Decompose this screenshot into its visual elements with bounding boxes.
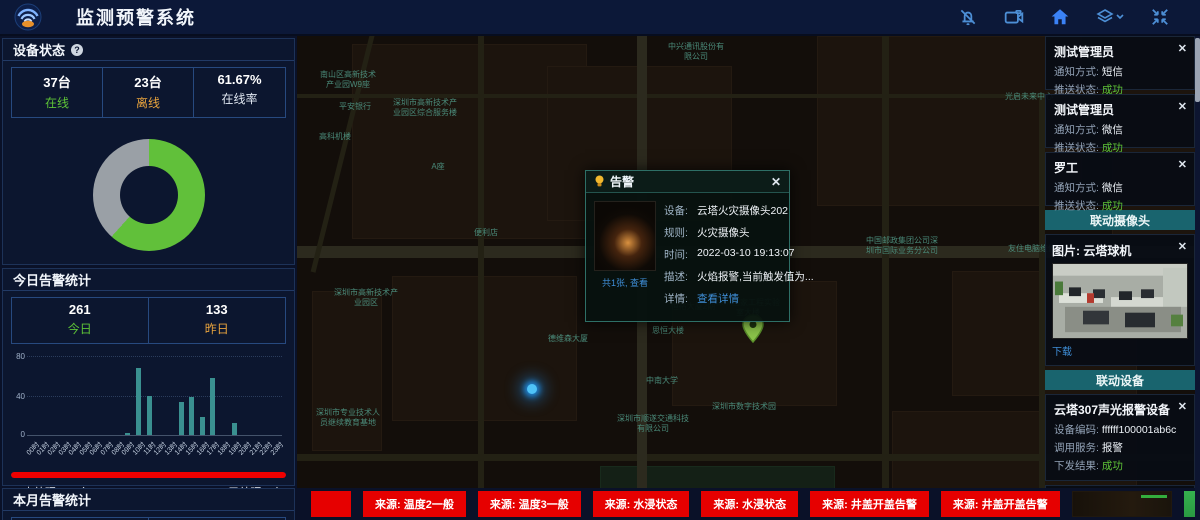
alert-row-label: 描述: [664,269,692,284]
notification-name: 测试管理员 [1054,43,1186,60]
alarm-lamp-icon [594,175,605,188]
map-label: A座 [423,162,453,172]
linked-device-section-header[interactable]: 联动设备 [1045,370,1195,390]
bar-slot [240,356,251,435]
today-alarms-header: 今日告警统计 [3,269,294,291]
bar-chart-xlabels: 00时01时02时03时04时05时06时07时08时09时10时11时12时1… [27,438,282,466]
month-alarms-panel: 本月告警统计 763 1146 [2,488,295,520]
bottom-alert-card[interactable]: 来源: 井盖开盖告警 [941,491,1060,517]
device-row-value: 成功 [1102,460,1123,472]
notify-method-label: 通知方式: [1054,124,1099,136]
vertical-scrollbar [1195,36,1200,520]
alert-detail-link[interactable]: 查看详情 [697,291,739,306]
notification-card: ✕ 测试管理员 通知方式:短信 推送状态:成功 [1045,36,1195,90]
map-road [882,36,889,520]
notify-method-value: 短信 [1102,66,1123,78]
notify-method-label: 通知方式: [1054,182,1099,194]
bell-off-icon[interactable] [958,7,978,27]
push-status-label: 推送状态: [1054,200,1099,212]
stat-offline: 23台离线 [103,68,194,117]
notification-card: ✕ 测试管理员 通知方式:微信 推送状态:成功 [1045,94,1195,148]
map-label: 思恒大楼 [641,326,695,336]
device-status-title: 设备状态 [13,40,65,59]
bar-slot [144,356,155,435]
right-sidebar: ✕ 测试管理员 通知方式:短信 推送状态:成功 ✕ 测试管理员 通知方式:微信 … [1045,36,1195,488]
bar-slot [250,356,261,435]
page-title: 监测预警系统 [76,4,196,30]
device-row-label: 下发结果: [1054,460,1099,472]
bottom-alert-snapshot-dark[interactable] [1072,491,1172,517]
today-alarms-panel: 今日告警统计 261今日 133昨日 80 40 0 00时01时02时03时0… [2,268,295,486]
today-alarms-title: 今日告警统计 [13,270,91,289]
map-label: 深圳市顺遂交通科技有限公司 [615,414,691,435]
device-row-value: 报警 [1102,442,1123,454]
app-logo-icon [14,3,42,31]
bar-x-label: 23时 [271,438,282,466]
bar-chart-plot: 80 40 0 [27,356,282,436]
bar-slot [165,356,176,435]
alert-row-label: 设备: [664,203,692,218]
map-label: 深圳市专业技术人员继续教育基地 [313,408,383,429]
bar-slot [38,356,49,435]
device-row-label: 调用服务: [1054,442,1099,454]
stat-today: 261今日 [12,298,149,343]
map-road [478,36,484,520]
app-root: 监测预警系统 [0,0,1200,520]
bar-slot [133,356,144,435]
map-label: 深圳市数字技术园 [697,402,791,412]
bar [136,368,141,435]
linked-device-card: ✕ 云塔307声光报警设备 设备编码:ffffff100001ab6c 调用服务… [1045,394,1195,481]
unhandled-progress-fill [11,472,286,478]
alert-row-value: 2022-03-10 19:13:07 [697,247,795,262]
map-label: 平安银行 [327,102,383,112]
device-status-panel: 设备状态 ? 37台在线 23台离线 61.67%在线率 在线 (37) 离线 … [2,38,295,265]
bottom-alert-list: 来源: 温度2一般来源: 温度3一般来源: 水浸状态来源: 水浸状态来源: 井盖… [311,491,1060,517]
y-tick: 80 [13,352,25,361]
bar-chart-bars [27,356,282,435]
alert-detail-rows: 设备:云塔火灾摄像头202 规则:火灾摄像头 时间:2022-03-10 19:… [664,201,814,313]
close-icon[interactable]: ✕ [1178,100,1187,113]
stat-online-rate: 61.67%在线率 [194,68,285,117]
month-alarms-title: 本月告警统计 [13,490,91,509]
notify-method-value: 微信 [1102,124,1123,136]
push-status-value: 成功 [1102,200,1123,212]
donut-chart [93,139,205,251]
video-camera-icon[interactable] [1004,7,1024,27]
bar [232,423,237,435]
home-icon[interactable] [1050,7,1070,27]
stat-online: 37台在线 [12,68,103,117]
bottom-alert-card[interactable]: 来源: 水浸状态 [593,491,690,517]
scrollbar-thumb[interactable] [1195,38,1200,102]
map-label: 便利店 [465,228,507,238]
bottom-alert-bar: 来源: 温度2一般来源: 温度3一般来源: 水浸状态来源: 水浸状态来源: 井盖… [297,488,1200,520]
bar-slot [197,356,208,435]
map-label: 中兴通讯股份有限公司 [667,42,725,63]
alert-row-value: 火灾摄像头 [697,225,750,240]
bar-slot [229,356,240,435]
bar-slot [70,356,81,435]
camera-image-title: 图片: 云塔球机 [1052,242,1188,259]
device-row-label: 设备编码: [1054,424,1099,436]
map-label: 高科机楼 [309,132,361,142]
bar-slot [101,356,112,435]
device-status-panel-header: 设备状态 ? [3,39,294,61]
y-tick: 40 [13,392,25,401]
stat-yesterday: 133昨日 [149,298,286,343]
bar-slot [48,356,59,435]
bottom-alert-card[interactable]: 来源: 温度2一般 [363,491,466,517]
close-icon[interactable]: ✕ [771,176,781,188]
notification-name: 罗工 [1054,159,1186,176]
bar-slot [186,356,197,435]
fullscreen-icon[interactable] [1150,7,1170,27]
bar-slot [123,356,134,435]
alert-thumbnail-image[interactable] [594,201,656,271]
map-label: 德维森大厦 [535,334,601,344]
y-tick: 0 [13,430,25,439]
bar [189,397,194,435]
notification-card: ✕ 罗工 通知方式:微信 推送状态:成功 [1045,152,1195,206]
today-alarms-stats: 261今日 133昨日 [11,297,286,344]
map-label: 中南大学 [635,376,689,386]
notify-method-value: 微信 [1102,182,1123,194]
bar-slot [261,356,272,435]
device-status-stats: 37台在线 23台离线 61.67%在线率 [11,67,286,118]
bar-slot [112,356,123,435]
alert-row-value: 云塔火灾摄像头202 [697,203,788,218]
map-label: 南山区高新技术产业园W9座 [317,70,379,91]
handled-progress-bar [11,472,286,478]
bar-slot [59,356,70,435]
alert-row-label: 规则: [664,225,692,240]
map-label: 深圳市高新技术产业园区综合服务楼 [391,98,459,119]
camera-snapshot-image[interactable] [1052,263,1188,339]
close-icon[interactable]: ✕ [1178,42,1187,55]
bar-slot [271,356,282,435]
bar-slot [91,356,102,435]
donut-chart-wrap [3,124,294,266]
layers-icon[interactable] [1096,7,1124,27]
bar-slot [80,356,91,435]
alert-row-label: 时间: [664,247,692,262]
bar [200,417,205,435]
bar [210,378,215,435]
linked-camera-card: ✕ 图片: 云塔球机 下载 [1045,234,1195,366]
header-icon-group [958,7,1186,27]
alert-thumbnail-caption[interactable]: 共1张, 查看 [594,276,656,289]
linked-camera-section-header[interactable]: 联动摄像头 [1045,210,1195,230]
download-link[interactable]: 下载 [1052,343,1072,358]
alert-thumbnail-wrap: 共1张, 查看 [594,201,656,313]
bottom-alert-card[interactable]: 来源: 井盖开盖告警 [810,491,929,517]
bar-slot [176,356,187,435]
close-icon[interactable]: ✕ [1178,400,1187,413]
device-name: 云塔307声光报警设备 [1054,401,1186,418]
close-icon[interactable]: ✕ [1178,240,1187,253]
alert-popup-header: 告警 ✕ [586,171,789,193]
bar-slot [218,356,229,435]
bar-slot [155,356,166,435]
bottom-alert-card[interactable]: 来源: 水浸状态 [701,491,798,517]
alert-row-value: 火焰报警,当前触发值为... [697,269,814,284]
bar [125,433,130,435]
bottom-alert-card[interactable] [311,491,351,517]
help-icon[interactable]: ? [71,44,83,56]
map-label: 中国邮政集团公司深圳市国际业务分公司 [865,236,939,257]
month-alarms-header: 本月告警统计 [3,489,294,511]
bottom-alert-card[interactable]: 来源: 温度3一般 [478,491,581,517]
alert-popup-title: 告警 [610,173,634,190]
close-icon[interactable]: ✕ [1178,158,1187,171]
hourly-bar-chart: 80 40 0 00时01时02时03时04时05时06时07时08时09时10… [11,348,286,468]
notify-method-label: 通知方式: [1054,66,1099,78]
bar-slot [27,356,38,435]
alert-row-label: 详情: [664,291,692,306]
map-label: 深圳市高新技术产业园区 [333,288,399,309]
device-row-value: ffffff100001ab6c [1102,424,1176,436]
bar-slot [208,356,219,435]
alert-popup-body: 共1张, 查看 设备:云塔火灾摄像头202 规则:火灾摄像头 时间:2022-0… [586,193,789,321]
left-sidebar: 设备状态 ? 37台在线 23台离线 61.67%在线率 在线 (37) 离线 … [2,38,295,520]
bar [179,402,184,435]
map-marker-blue-dot[interactable] [527,384,537,394]
notification-name: 测试管理员 [1054,101,1186,118]
alert-popup: 告警 ✕ 共1张, 查看 设备:云塔火灾摄像头202 规则:火灾摄像头 时间:2… [585,170,790,322]
bar [147,396,152,436]
map-block [392,276,577,421]
app-header: 监测预警系统 [0,0,1200,36]
